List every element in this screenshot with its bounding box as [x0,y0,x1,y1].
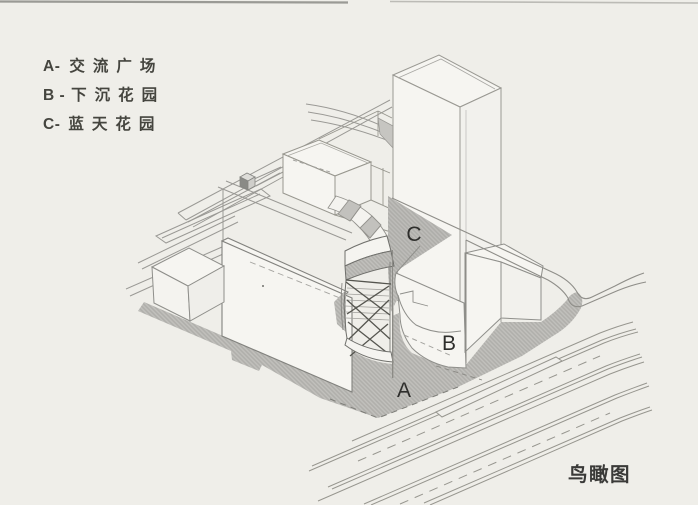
svg-text:B: B [442,332,456,355]
svg-text:C: C [406,223,421,246]
svg-text:A: A [397,379,411,402]
svg-text:B -下沉花园: B -下沉花园 [43,85,165,104]
svg-text:鸟瞰图: 鸟瞰图 [568,463,631,486]
